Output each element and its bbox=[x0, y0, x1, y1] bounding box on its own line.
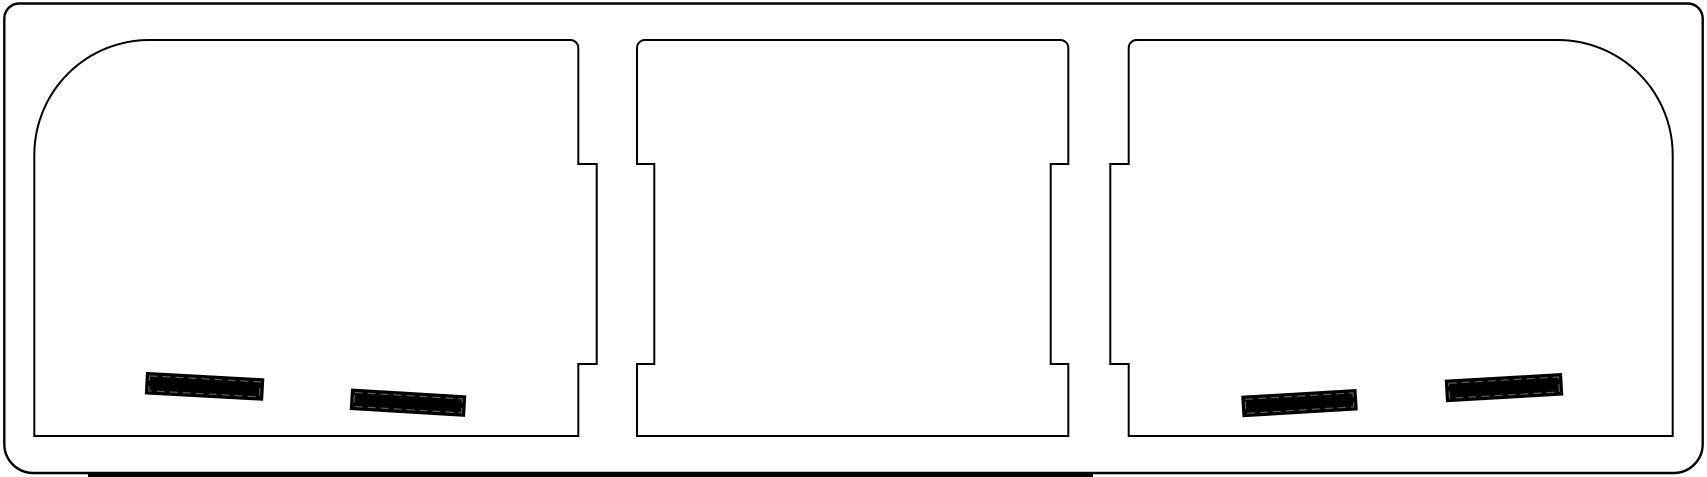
right-panel-outline bbox=[1110, 40, 1672, 436]
middle-panel-outline bbox=[637, 40, 1068, 436]
diagram-canvas bbox=[0, 0, 1707, 477]
template-drawing bbox=[0, 0, 1707, 477]
left-panel-outline bbox=[34, 40, 596, 436]
